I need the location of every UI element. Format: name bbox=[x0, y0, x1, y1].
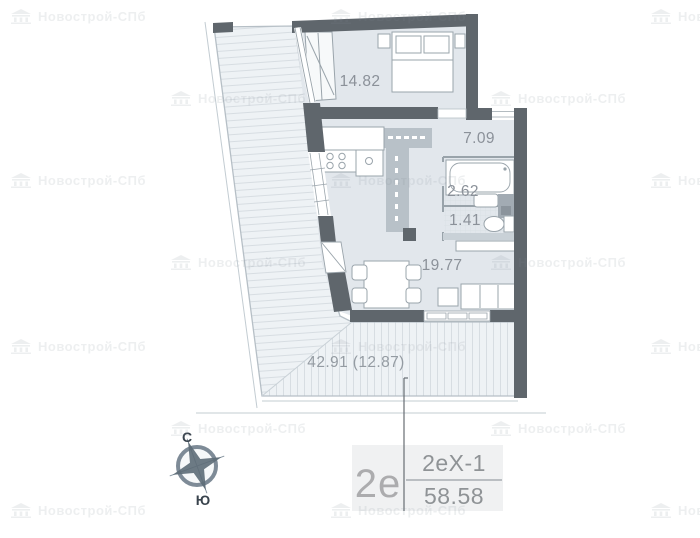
sofa bbox=[461, 284, 516, 309]
kitchen-unit bbox=[318, 127, 384, 176]
floor-plan-image: 14.82 7.09 2.62 1.41 19.77 42.91 (12.87)… bbox=[0, 0, 700, 538]
nightstand-right bbox=[455, 34, 465, 48]
chair bbox=[352, 265, 367, 280]
structural-column bbox=[403, 228, 416, 241]
unit-type: 2е bbox=[355, 462, 402, 506]
toilet-tank bbox=[504, 216, 514, 232]
tv-console bbox=[456, 241, 515, 251]
living-area-label: 19.77 bbox=[422, 257, 463, 274]
bathtub-drain bbox=[503, 167, 506, 170]
duct-band bbox=[443, 233, 514, 240]
compass-north-label: С bbox=[182, 429, 192, 445]
chair bbox=[406, 265, 421, 280]
side-table bbox=[438, 288, 458, 306]
wc-area-label: 1.41 bbox=[449, 212, 481, 229]
chair bbox=[406, 288, 421, 303]
bedroom-area-label: 14.82 bbox=[340, 73, 381, 90]
dining-table bbox=[364, 261, 409, 308]
toilet-bowl bbox=[484, 217, 504, 232]
bedroom-door-opening bbox=[438, 109, 466, 118]
compass: С Ю bbox=[160, 429, 234, 508]
pillow bbox=[396, 36, 421, 53]
pillow bbox=[424, 36, 449, 53]
kitchen-counter bbox=[318, 127, 384, 150]
floorplan-screenshot: 14.82 7.09 2.62 1.41 19.77 42.91 (12.87)… bbox=[0, 0, 700, 538]
sink-cabinet bbox=[356, 150, 383, 176]
unit-plan-code: 2еХ-1 bbox=[422, 450, 486, 476]
unit-total-area: 58.58 bbox=[424, 483, 484, 509]
terrace-area-label: 42.91 (12.87) bbox=[307, 354, 404, 371]
chair bbox=[352, 288, 367, 303]
bathroom-area-label: 2.62 bbox=[447, 183, 479, 200]
hallway-area-label: 7.09 bbox=[463, 130, 495, 147]
compass-south-label: Ю bbox=[196, 492, 210, 508]
stove bbox=[320, 150, 356, 172]
unit-card: 2е 2еХ-1 58.58 bbox=[352, 378, 503, 511]
nightstand-left bbox=[378, 34, 390, 48]
hall-window bbox=[492, 109, 514, 120]
